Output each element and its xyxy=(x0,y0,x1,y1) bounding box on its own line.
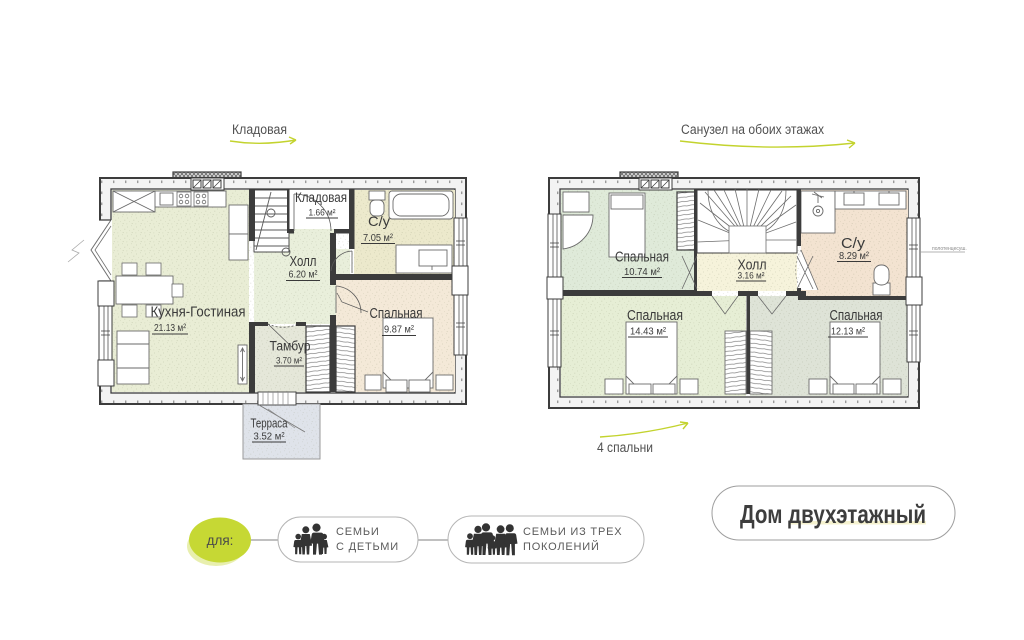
svg-text:полотенцесуш.: полотенцесуш. xyxy=(932,246,967,252)
svg-text:Спальная: Спальная xyxy=(830,308,883,324)
svg-text:С/у: С/у xyxy=(841,236,866,252)
svg-text:4 спальни: 4 спальни xyxy=(597,440,653,455)
svg-text:9.87 м²: 9.87 м² xyxy=(384,325,415,336)
svg-text:10.74 м²: 10.74 м² xyxy=(624,267,661,278)
svg-text:СЕМЬИ ИЗ ТРЕХ: СЕМЬИ ИЗ ТРЕХ xyxy=(523,526,622,538)
svg-text:Тамбур: Тамбур xyxy=(270,339,311,354)
svg-text:3.52 м²: 3.52 м² xyxy=(254,432,286,443)
svg-text:СЕМЬИ: СЕМЬИ xyxy=(336,526,380,538)
svg-text:14.43 м²: 14.43 м² xyxy=(630,327,667,338)
svg-text:Спальная: Спальная xyxy=(615,250,669,266)
svg-text:3.70 м²: 3.70 м² xyxy=(276,356,302,367)
svg-text:8.29 м²: 8.29 м² xyxy=(839,251,870,262)
svg-text:Дом двухэтажный: Дом двухэтажный xyxy=(740,499,926,529)
svg-text:7.05 м²: 7.05 м² xyxy=(363,233,394,244)
svg-text:3.16 м²: 3.16 м² xyxy=(738,271,765,282)
svg-text:ПОКОЛЕНИЙ: ПОКОЛЕНИЙ xyxy=(523,540,600,553)
svg-text:Кладовая: Кладовая xyxy=(232,122,287,137)
svg-text:12.13 м²: 12.13 м² xyxy=(831,327,866,338)
svg-text:Кладовая: Кладовая xyxy=(295,190,347,205)
svg-text:Терраса: Терраса xyxy=(251,416,289,431)
svg-text:С ДЕТЬМИ: С ДЕТЬМИ xyxy=(336,541,399,553)
svg-text:Спальная: Спальная xyxy=(627,308,683,324)
svg-text:Санузел на обоих этажах: Санузел на обоих этажах xyxy=(681,122,824,137)
svg-text:6.20 м²: 6.20 м² xyxy=(289,270,319,281)
svg-text:для:: для: xyxy=(207,533,234,548)
svg-text:Кухня-Гостиная: Кухня-Гостиная xyxy=(151,305,246,321)
svg-text:Спальная: Спальная xyxy=(370,306,423,322)
svg-text:Холл: Холл xyxy=(290,254,317,270)
svg-text:1.66 м²: 1.66 м² xyxy=(309,208,336,219)
svg-text:21.13 м²: 21.13 м² xyxy=(154,323,187,334)
svg-text:С/у: С/у xyxy=(368,213,390,229)
